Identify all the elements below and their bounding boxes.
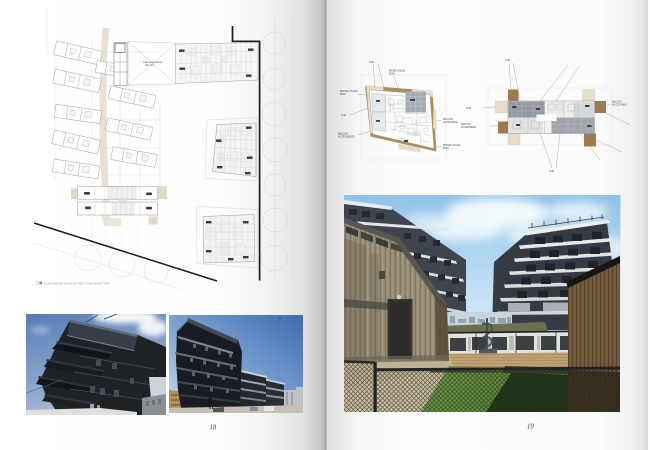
svg-text:19: 19 — [527, 424, 534, 431]
svg-text:BOIS: BOIS — [340, 93, 346, 96]
svg-text:VUE: VUE — [341, 114, 346, 117]
svg-text:300 m2: 300 m2 — [145, 63, 154, 67]
svg-text:BOIS: BOIS — [389, 73, 395, 76]
svg-text:VUE: VUE — [549, 170, 554, 173]
svg-text:ACCESSIBLE: ACCESSIBLE — [461, 126, 476, 129]
svg-text:VUE: VUE — [466, 107, 471, 110]
svg-text:18: 18 — [210, 425, 217, 432]
svg-text:BOIS: BOIS — [443, 147, 449, 150]
svg-text:VUE: VUE — [369, 61, 374, 64]
svg-text:ACCESSIBLES: ACCESSIBLES — [338, 136, 355, 139]
svg-text:VUE: VUE — [505, 59, 510, 62]
svg-text:ACCESSIBLE: ACCESSIBLE — [612, 104, 627, 107]
svg-text:PLAN MASSE PLAN DU REZ 1:500: PLAN MASSE PLAN DU REZ 1:500 PLAN TYPE — [44, 281, 109, 285]
svg-text:ACCESSIBLE: ACCESSIBLE — [443, 121, 458, 124]
